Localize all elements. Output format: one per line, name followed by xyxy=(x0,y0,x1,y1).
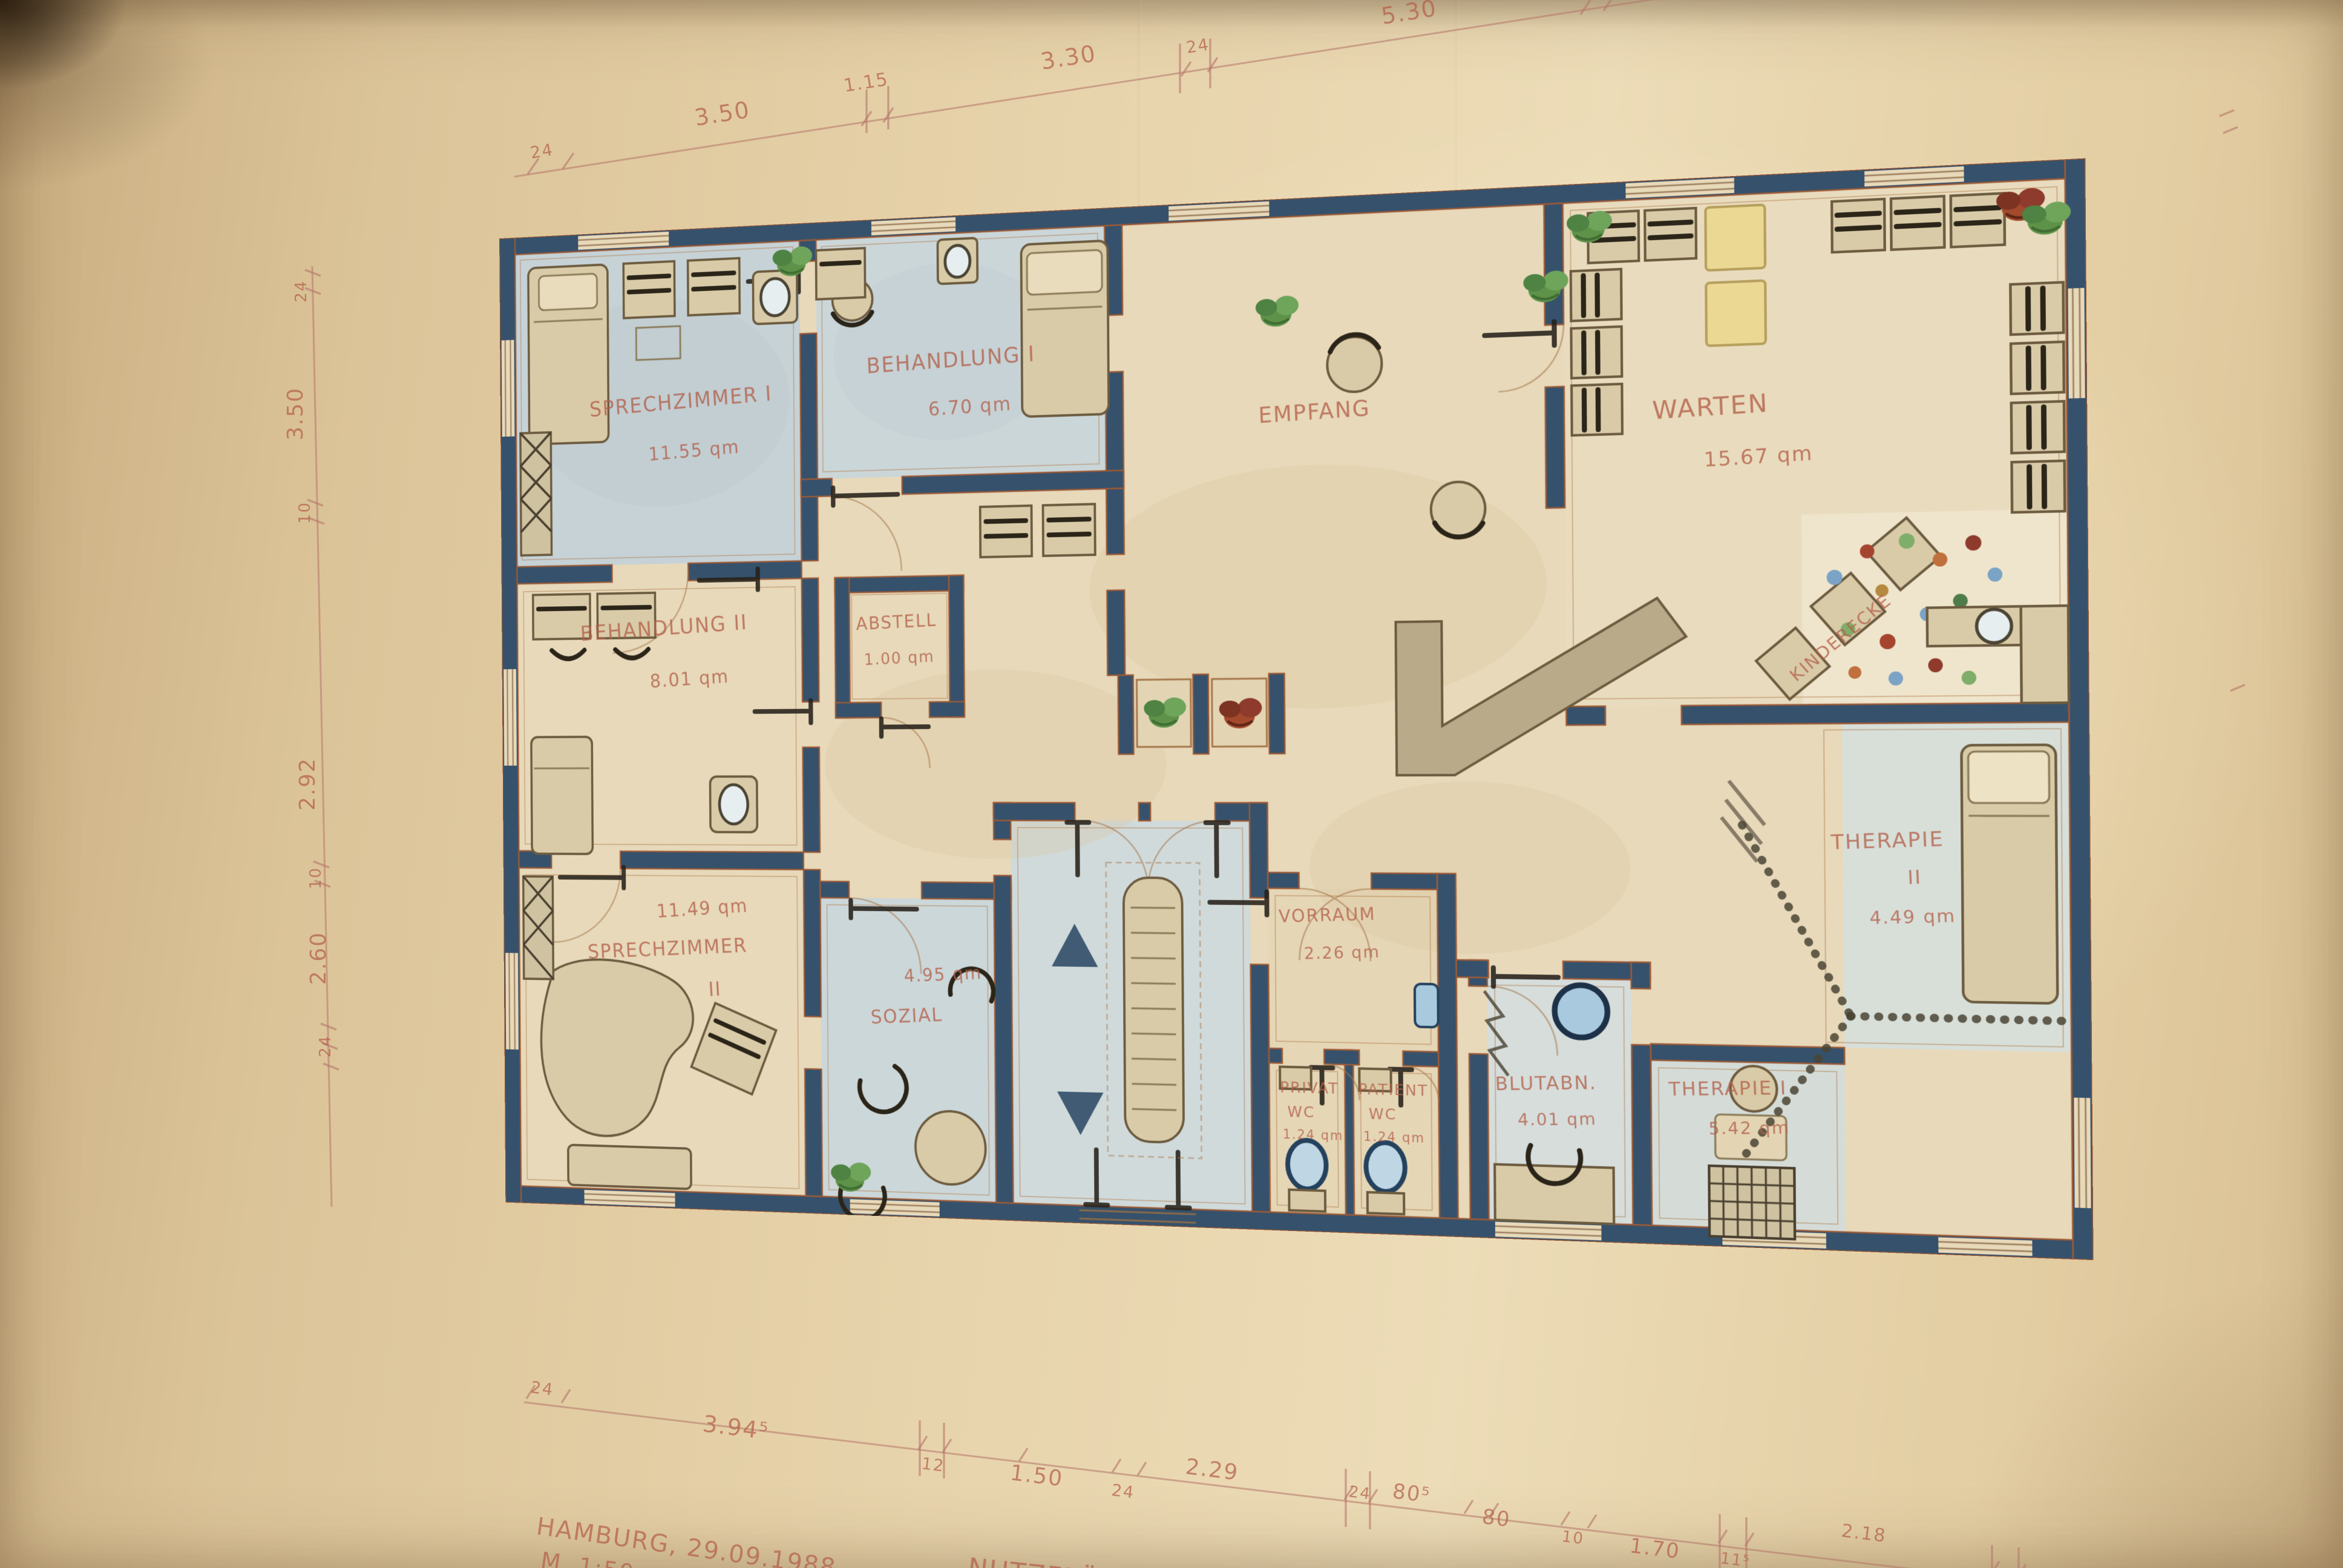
dim-label: 10 xyxy=(1561,1527,1585,1548)
waiting-chair xyxy=(1571,327,1622,378)
bed-icon xyxy=(1961,745,2057,1004)
dim-label: 2.29 xyxy=(1184,1454,1240,1485)
dim-label: 24 xyxy=(292,280,310,302)
dimension-line-top: 24 3.50 1.15 3.30 24 5.30 xyxy=(514,0,1852,177)
couch-icon xyxy=(531,737,593,854)
sink-icon xyxy=(1555,985,1608,1038)
usable-area-note: NUTZFLÄCHE xyxy=(966,1552,1159,1568)
grid-chair-icon xyxy=(1709,1166,1795,1239)
dim-label: 3.50 xyxy=(283,387,308,440)
dim-label: 24 xyxy=(1185,35,1211,57)
room-area-therapie1: 5.42 qm xyxy=(1708,1119,1791,1139)
room-area-abstell: 1.00 qm xyxy=(863,647,935,669)
dim-label: 2.18 xyxy=(1840,1520,1888,1547)
toilet-icon xyxy=(1288,1140,1326,1212)
dim-label: 24 xyxy=(1110,1481,1136,1502)
side-table xyxy=(1706,281,1766,346)
room-label-abstell: ABSTELL xyxy=(856,609,937,634)
sink-icon xyxy=(1415,984,1438,1027)
stool-icon xyxy=(1327,334,1382,393)
dim-label: 10 xyxy=(296,501,314,524)
sink-icon xyxy=(1976,609,2011,643)
room-type-wc-privat: WC xyxy=(1287,1103,1315,1122)
dim-label: 1.15 xyxy=(842,69,890,97)
waiting-chair xyxy=(2011,342,2064,394)
dim-label: 24 xyxy=(529,1378,555,1399)
waiting-chair xyxy=(1891,196,1944,250)
dim-label: 24 xyxy=(1348,1483,1372,1503)
dimension-ticks-right-edge xyxy=(2220,110,2245,691)
sink-icon xyxy=(753,270,797,324)
table-icon xyxy=(816,248,865,299)
dim-label: 2.60 xyxy=(306,932,331,985)
waiting-chair xyxy=(1645,208,1696,261)
room-label-vorraum: VORRAUM xyxy=(1278,903,1376,927)
room-label-wc-privat: PRIVAT xyxy=(1280,1079,1339,1098)
waiting-chair xyxy=(2010,283,2063,335)
waiting-chair xyxy=(1832,199,1885,252)
sink-icon xyxy=(937,238,977,284)
dim-label: 5.30 xyxy=(1380,0,1439,30)
waiting-chair xyxy=(2011,401,2065,453)
dim-label: 3.50 xyxy=(693,96,752,131)
table-icon xyxy=(1043,504,1095,556)
dim-label: 10 xyxy=(307,867,325,889)
dim-label: 1.50 xyxy=(1009,1460,1064,1491)
couch-icon xyxy=(568,1145,691,1189)
room-type-wc-patient: WC xyxy=(1369,1105,1397,1123)
waiting-chair xyxy=(1571,384,1622,436)
dim-label: 80⁵ xyxy=(1391,1479,1432,1508)
table-icon xyxy=(980,506,1032,557)
dim-label: 3.94⁵ xyxy=(701,1410,770,1445)
sink-icon xyxy=(710,777,758,832)
room-label-therapie1: THERAPIE I xyxy=(1668,1077,1788,1100)
chair-icon xyxy=(623,261,675,318)
title-block: HAMBURG, 29.09.1988 M. 1:50 NUTZFLÄCHE xyxy=(535,1512,1159,1568)
exam-couch-icon xyxy=(1021,241,1109,417)
room-label-therapie2: THERAPIE xyxy=(1830,828,1945,855)
dim-label: 2.92 xyxy=(295,757,320,811)
dim-label: 24 xyxy=(316,1035,335,1057)
waiting-chair xyxy=(2011,461,2065,512)
room-area-sozial: 4.95 qm xyxy=(903,962,983,987)
room-area-blutabn: 4.01 qm xyxy=(1518,1110,1597,1130)
toilet-icon xyxy=(1366,1142,1405,1214)
dim-label: 11⁵ xyxy=(1719,1549,1751,1568)
room-label-wc-patient: PATIENT xyxy=(1358,1080,1428,1100)
room-area-therapie2: 4.49 qm xyxy=(1869,906,1956,929)
floor-plan-drawing: SPRECHZIMMER I 11.55 qm BEHANDLUNG I 6.7… xyxy=(499,158,2094,1261)
room-suffix-sprechzimmer2: II xyxy=(708,978,723,1001)
wardrobe-icon xyxy=(520,433,552,556)
waiting-chair xyxy=(1571,269,1622,321)
stool-icon xyxy=(1431,481,1486,537)
wardrobe-icon xyxy=(523,877,554,979)
chair-icon xyxy=(688,258,740,316)
room-area-wc-patient: 1.24 qm xyxy=(1363,1129,1425,1146)
dim-label: 80 xyxy=(1481,1504,1512,1532)
dim-label: 3.30 xyxy=(1039,40,1098,75)
room-area-wc-privat: 1.24 qm xyxy=(1283,1126,1344,1143)
dimension-line-left: 24 3.50 10 2.92 10 2.60 24 xyxy=(283,266,339,1207)
room-label-blutabn: BLUTABN. xyxy=(1495,1071,1597,1094)
photograph-of-floorplan: 24 3.50 1.15 3.30 24 5.30 24 3.50 10 2.9… xyxy=(0,0,2343,1568)
room-suffix-therapie2: II xyxy=(1907,866,1922,889)
side-table xyxy=(1705,204,1765,270)
dimension-line-bottom: 24 3.94⁵ 12 1.50 24 2.29 24 80⁵ 80 10 1.… xyxy=(524,1378,2069,1568)
floor-plan: SPRECHZIMMER I 11.55 qm BEHANDLUNG I 6.7… xyxy=(499,158,2094,1261)
desk-icon xyxy=(1495,1165,1614,1224)
dim-label: 12 xyxy=(920,1454,946,1475)
dim-label: 1.70 xyxy=(1628,1534,1682,1564)
room-area-vorraum: 2.26 qm xyxy=(1303,942,1380,963)
dim-label: 24 xyxy=(529,140,555,163)
round-table-icon xyxy=(916,1110,986,1185)
room-label-sozial: SOZIAL xyxy=(870,1004,943,1028)
